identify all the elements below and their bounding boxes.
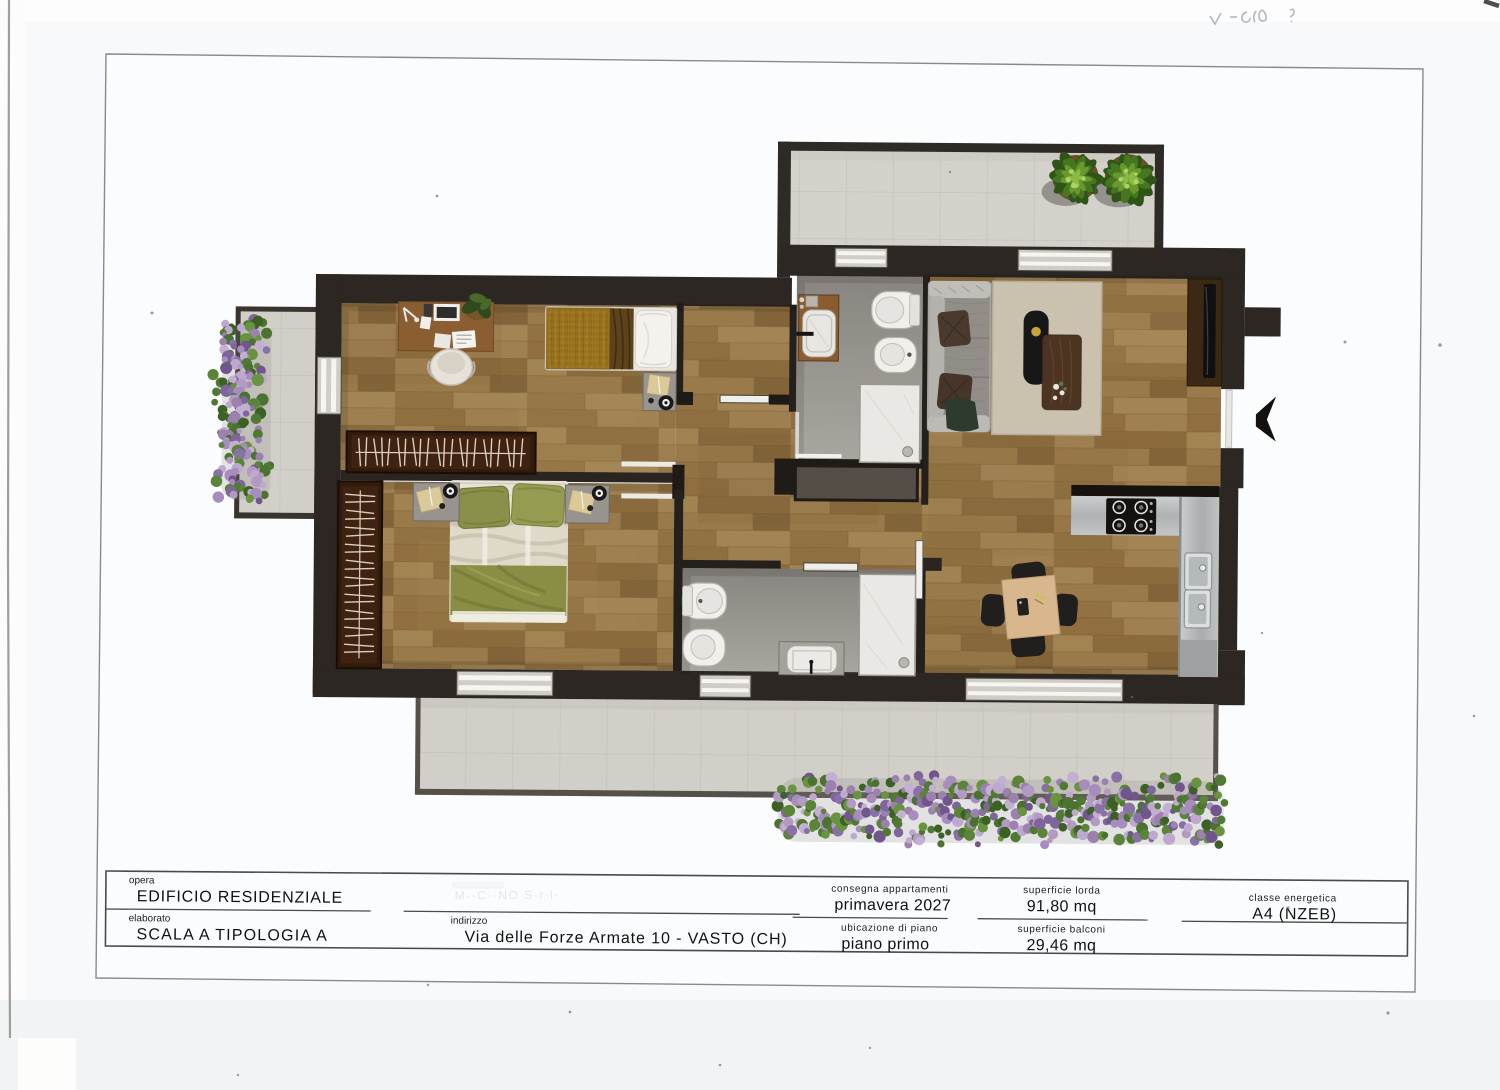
svg-text:consegna appartamenti: consegna appartamenti (831, 884, 948, 896)
svg-text:EDIFICIO RESIDENZIALE: EDIFICIO RESIDENZIALE (137, 888, 343, 907)
svg-text:piano primo: piano primo (841, 936, 929, 954)
svg-text:ubicazione di piano: ubicazione di piano (841, 923, 938, 935)
svg-text:primavera 2027: primavera 2027 (834, 897, 951, 915)
svg-text:A4 (NZEB): A4 (NZEB) (1252, 906, 1337, 924)
svg-text:superficie lorda: superficie lorda (1023, 885, 1101, 897)
svg-text:elaborato: elaborato (129, 913, 171, 924)
svg-text:classe energetica: classe energetica (1249, 893, 1337, 905)
svg-text:29,46 mq: 29,46 mq (1026, 937, 1096, 955)
svg-text:M··C··NO S·r·l·: M··C··NO S·r·l· (455, 888, 560, 903)
svg-text:indirizzo: indirizzo (451, 916, 488, 927)
svg-text:SCALA A TIPOLOGIA A: SCALA A TIPOLOGIA A (136, 926, 328, 944)
svg-text:opera: opera (129, 875, 155, 886)
svg-text:Via delle Forze Armate 10 - VA: Via delle Forze Armate 10 - VASTO (CH) (464, 929, 787, 948)
svg-text:superficie balconi: superficie balconi (1017, 924, 1105, 936)
svg-text:91,80 mq: 91,80 mq (1027, 898, 1097, 916)
